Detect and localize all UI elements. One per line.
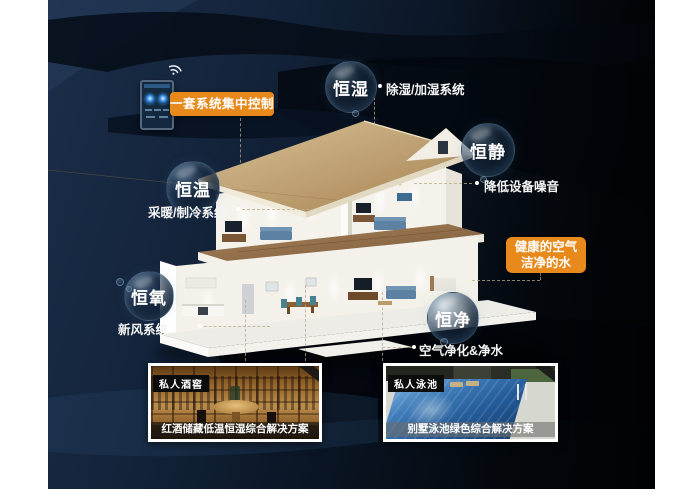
phone-header: [144, 84, 170, 88]
pool-caption: 别墅泳池绿色综合解决方案: [386, 422, 555, 437]
wine-cellar-photo: 私人酒窖 红酒储藏低温恒湿综合解决方案: [151, 366, 319, 439]
deco-bubble: [116, 278, 124, 286]
wifi-icon: [166, 59, 184, 77]
pool-tag: 私人泳池: [388, 375, 444, 392]
smart-controller-phone: [140, 80, 174, 130]
marker-dot: [198, 324, 202, 328]
connector-clean: [382, 347, 412, 348]
connector-temperature: [242, 209, 310, 210]
bubble-constant-humidity: 恒湿: [325, 61, 377, 113]
pool-photo: 私人泳池 别墅泳池绿色综合解决方案: [386, 366, 555, 439]
connector-wine-card-2: [305, 285, 306, 361]
connector-oxygen: [204, 326, 270, 327]
phone-dial-left: [145, 94, 155, 104]
note-noise-reduction: 降低设备噪音: [484, 176, 559, 195]
connector-pool-card: [382, 292, 383, 361]
wine-cellar-caption: 红酒储藏低温恒湿综合解决方案: [151, 422, 319, 437]
wine-cellar-card: 私人酒窖 红酒储藏低温恒湿综合解决方案: [148, 363, 322, 442]
connector-control: [240, 118, 241, 168]
bubble-constant-oxygen: 恒氧: [124, 271, 174, 321]
connector-humidity: [374, 97, 375, 149]
connector-quiet: [414, 183, 472, 184]
pool-card: 私人泳池 别墅泳池绿色综合解决方案: [383, 363, 558, 442]
note-heating-cooling: 采暖/制冷系统: [148, 202, 226, 221]
marker-dot: [378, 84, 382, 88]
connector-water-h: [472, 280, 540, 281]
note-fresh-air: 新风系统: [118, 319, 168, 338]
healthy-air-line: 健康的空气: [506, 239, 586, 255]
infographic-poster: { "scene": { "control_label": "一套系统集中控制"…: [0, 0, 700, 497]
poster-canvas: 一套系统集中控制 健康的空气 洁净的水 恒湿 恒静 恒温 恒氧 恒净 除湿/加湿…: [48, 0, 655, 489]
deco-bubble: [352, 110, 359, 117]
marker-dot: [412, 345, 416, 349]
note-purification: 空气净化&净水: [419, 340, 503, 359]
connector-wine-card: [245, 300, 246, 361]
bubble-constant-quiet: 恒静: [461, 123, 515, 177]
marker-dot: [475, 181, 479, 185]
control-label: 一套系统集中控制: [170, 92, 274, 116]
phone-dial-right: [158, 94, 168, 104]
bubble-constant-clean: 恒净: [427, 292, 479, 344]
healthy-air-water-label: 健康的空气 洁净的水: [506, 237, 586, 273]
wine-cellar-tag: 私人酒窖: [153, 375, 209, 392]
deco-bubble: [126, 286, 132, 292]
note-humidity-system: 除湿/加湿系统: [386, 79, 464, 98]
clean-water-line: 洁净的水: [506, 255, 586, 271]
marker-dot: [236, 207, 240, 211]
